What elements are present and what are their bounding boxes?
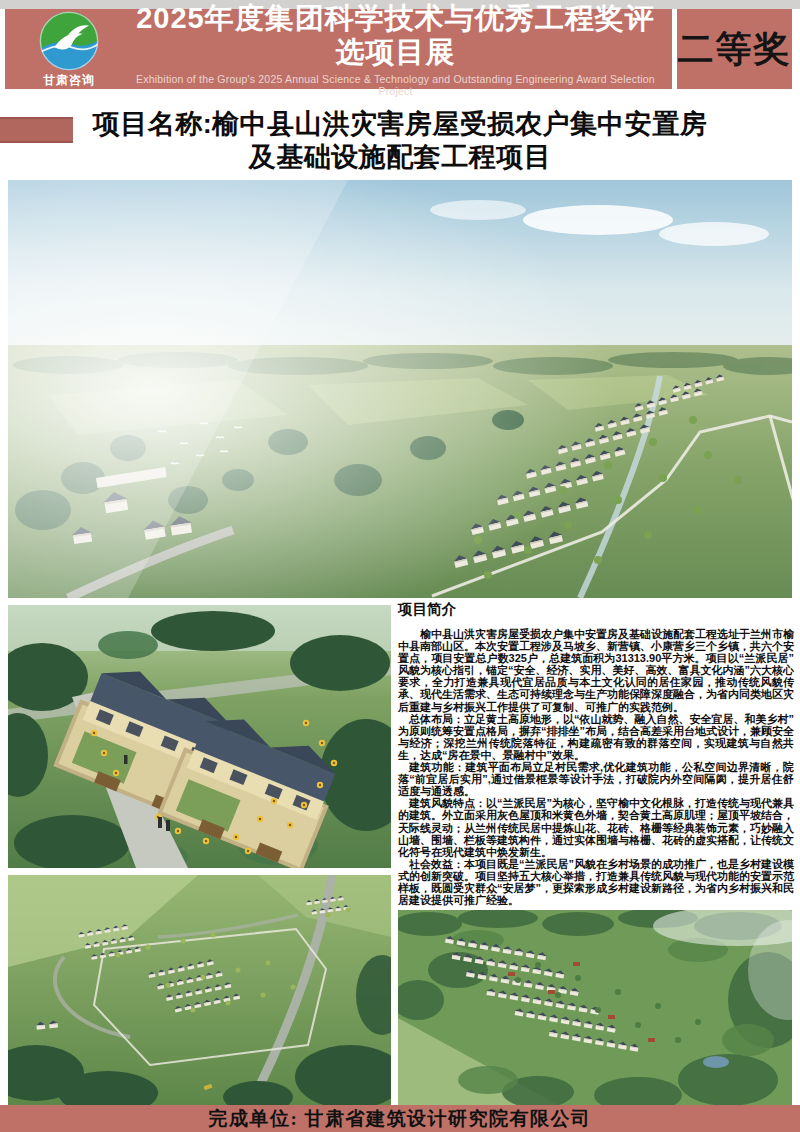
header-titles: 2025年度集团科学技术与优秀工程奖评选项目展 Exhibition of th… <box>133 1 672 97</box>
hillside-settlement-rendering <box>8 875 391 1105</box>
footer-banner: 完成单位: 甘肃省建筑设计研究院有限公司 <box>0 1105 800 1132</box>
title-accent-block <box>0 117 73 143</box>
intro-paragraph: 建筑功能：建筑平面布局立足村民需求,优化建筑功能，公私空间边界清晰，院落“前宜居… <box>398 761 794 797</box>
award-badge: 二等奖 <box>677 9 792 89</box>
header-banner: 甘肃咨询 2025年度集团科学技术与优秀工程奖评选项目展 Exhibition … <box>5 9 672 89</box>
project-intro: 项目简介 榆中县山洪灾害房屋受损农户集中安置房及基础设施配套工程选址于兰州市榆中… <box>398 600 794 906</box>
exhibition-title: 2025年度集团科学技术与优秀工程奖评选项目展 <box>133 1 658 69</box>
terraced-rows-rendering <box>398 910 792 1105</box>
company-logo-icon <box>39 11 99 71</box>
courtyard-house-rendering <box>8 605 391 868</box>
logo: 甘肃咨询 <box>5 9 133 89</box>
intro-paragraph: 建筑风貌特点：以“兰派民居”为核心，坚守榆中文化根脉，打造传统与现代兼具的建筑。… <box>398 797 794 857</box>
intro-heading: 项目简介 <box>398 600 794 619</box>
intro-paragraph: 社会效益：本项目既是“兰派民居”风貌在乡村场景的成功推广，也是乡村建设模式的创新… <box>398 858 794 906</box>
completed-by-label: 完成单位: 甘肃省建筑设计研究院有限公司 <box>208 1106 591 1132</box>
main-aerial-rendering <box>8 180 792 598</box>
award-badge-label: 二等奖 <box>678 25 792 74</box>
exhibition-subtitle: Exhibition of the Group's 2025 Annual Sc… <box>133 73 658 97</box>
project-title: 项目名称:榆中县山洪灾害房屋受损农户集中安置房 及基础设施配套工程项目 <box>0 102 800 174</box>
intro-paragraph: 总体布局：立足黄土高原地形，以“依山就势、融入自然、安全宜居、和美乡村”为原则统… <box>398 713 794 761</box>
project-title-section: 项目名称:榆中县山洪灾害房屋受损农户集中安置房 及基础设施配套工程项目 <box>0 102 800 178</box>
project-title-line1: 项目名称:榆中县山洪灾害房屋受损农户集中安置房 <box>93 109 708 139</box>
award-poster: 甘肃咨询 2025年度集团科学技术与优秀工程奖评选项目展 Exhibition … <box>0 0 800 1132</box>
project-title-line2: 及基础设施配套工程项目 <box>249 142 552 172</box>
intro-paragraph: 榆中县山洪灾害房屋受损农户集中安置房及基础设施配套工程选址于兰州市榆中县南部山区… <box>398 628 794 713</box>
logo-label: 甘肃咨询 <box>43 72 95 89</box>
